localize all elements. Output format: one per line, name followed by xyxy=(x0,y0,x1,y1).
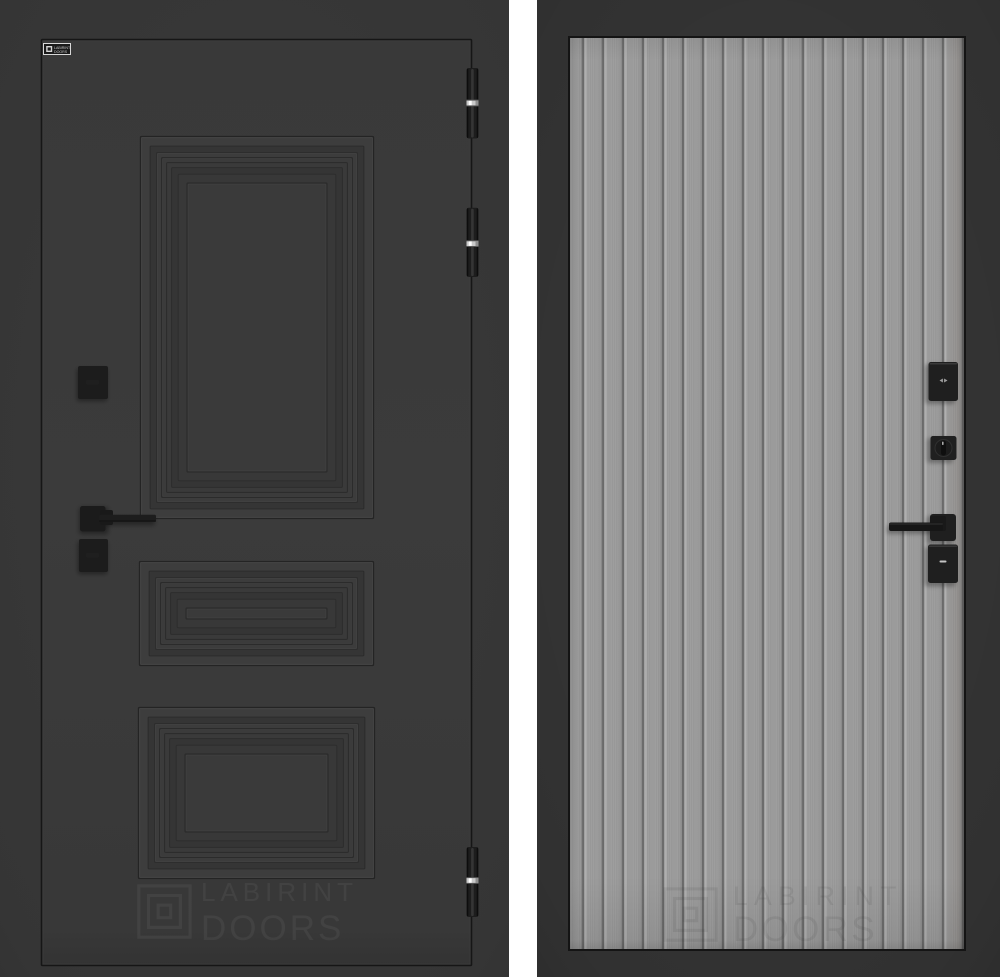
svg-text:LABIRINT: LABIRINT xyxy=(733,881,903,911)
svg-text:DOORS: DOORS xyxy=(733,910,878,949)
svg-text:DOORS: DOORS xyxy=(54,50,68,54)
svg-text:DOORS: DOORS xyxy=(201,909,344,948)
svg-text:LABIRINT: LABIRINT xyxy=(201,877,358,907)
